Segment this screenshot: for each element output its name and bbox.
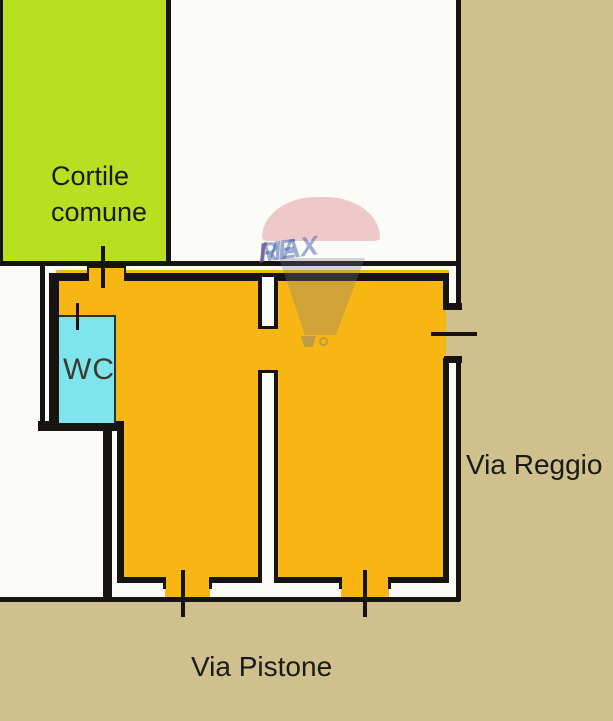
courtyard-label: Cortile comune xyxy=(51,158,176,230)
south-boundary-line xyxy=(0,597,460,602)
door-tick-courtyard xyxy=(101,246,105,288)
right-wall-outer-lower xyxy=(456,356,461,601)
bottom-wall-inner-2 xyxy=(210,577,258,583)
door-tick-bottom-right xyxy=(363,570,367,617)
door-tick-wc xyxy=(76,303,79,330)
bottom-wall-inner-1 xyxy=(118,577,165,583)
bottom-wall-inner-3 xyxy=(278,577,341,583)
left-wall-inner-upper xyxy=(49,273,59,430)
left-wall-inner-lower xyxy=(117,421,124,583)
wall-end-cap xyxy=(388,577,391,589)
building-street-divider xyxy=(456,0,461,265)
wall-end-cap xyxy=(339,577,342,589)
left-wall-outer-lower xyxy=(103,429,112,599)
partition-wall-lower xyxy=(258,370,278,583)
wc-label: WC xyxy=(63,352,113,388)
courtyard-door-opening xyxy=(87,266,126,281)
partition-wall-upper xyxy=(258,277,278,329)
street-label-right: Via Reggio xyxy=(466,447,602,483)
bottom-wall-inner-4 xyxy=(389,577,447,583)
street-label-bottom: Via Pistone xyxy=(191,649,332,685)
north-boundary-line xyxy=(0,261,460,266)
floor-plan-canvas: WC RE/MAX Cortile comune Via Regg xyxy=(0,0,613,721)
window-tick-right xyxy=(431,332,477,336)
wall-end-cap xyxy=(163,577,166,589)
left-wall-outer-upper xyxy=(40,264,45,431)
right-wall-inner-lower xyxy=(443,358,449,583)
right-wall-outer-upper xyxy=(456,265,461,310)
top-wall-right-segment xyxy=(124,273,449,281)
wall-end-cap xyxy=(209,577,212,589)
adjacent-building-area xyxy=(170,0,456,263)
door-tick-bottom-left xyxy=(181,570,185,617)
bottom-door-opening-left xyxy=(165,575,210,598)
